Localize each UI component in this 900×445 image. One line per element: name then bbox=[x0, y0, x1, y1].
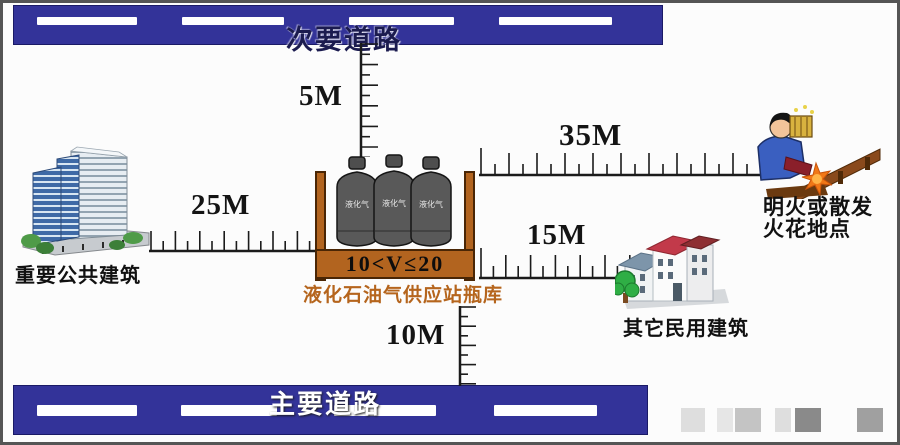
svg-text:液化气: 液化气 bbox=[419, 199, 443, 209]
distance-label-15m: 15M bbox=[527, 219, 586, 252]
station-caption: 液化石油气供应站瓶库 bbox=[293, 280, 513, 307]
distance-label-10m: 10M bbox=[386, 319, 445, 352]
civil-building-illustration bbox=[615, 227, 733, 315]
svg-text:液化气: 液化气 bbox=[345, 199, 369, 209]
right-block bbox=[681, 236, 719, 301]
spark-dot bbox=[810, 110, 814, 114]
flame-core bbox=[812, 174, 822, 184]
bush bbox=[123, 232, 143, 244]
distance-label-5m: 5M bbox=[299, 80, 343, 113]
secondary-road-label: 次要道路 bbox=[286, 18, 402, 57]
spark-dot bbox=[803, 105, 807, 109]
beam-leg bbox=[865, 157, 870, 170]
svg-text:液化气: 液化气 bbox=[382, 198, 406, 208]
distance-label-25m: 25M bbox=[191, 189, 250, 222]
ruler-5m bbox=[359, 43, 383, 157]
ruler-25m bbox=[149, 225, 321, 253]
spark-dot bbox=[794, 108, 798, 112]
road-dash bbox=[182, 17, 284, 25]
gas-cylinder: 液化气 bbox=[411, 157, 451, 246]
road-dash bbox=[37, 17, 137, 25]
ruler-10m bbox=[458, 306, 482, 386]
road-dash bbox=[181, 405, 277, 416]
civil-building-label: 其它民用建筑 bbox=[623, 312, 749, 341]
bush bbox=[109, 240, 125, 250]
flame-spot-label-line2: 火花地点 bbox=[763, 213, 851, 243]
gas-cylinder: 液化气 bbox=[337, 157, 377, 246]
lpg-safety-distance-diagram: 次要道路 主要道路 5M 25M 35M 15M 10M 10<V≤20 液化气… bbox=[0, 0, 900, 445]
road-dash bbox=[494, 405, 597, 416]
ruler-15m bbox=[479, 248, 633, 280]
road-dash bbox=[499, 17, 612, 25]
main-road-label: 主要道路 bbox=[269, 384, 381, 421]
gas-cylinders: 液化气 液化气 液化气 bbox=[336, 153, 452, 251]
bush bbox=[36, 242, 54, 254]
container-volume-label: 10<V≤20 bbox=[315, 249, 475, 279]
open-flame-illustration bbox=[738, 99, 888, 199]
distance-label-35m: 35M bbox=[559, 117, 622, 153]
beam-leg bbox=[838, 171, 843, 184]
public-building-label: 重要公共建筑 bbox=[15, 259, 141, 288]
road-dash bbox=[37, 405, 137, 416]
gas-cylinder: 液化气 bbox=[374, 155, 414, 246]
tower-front bbox=[33, 167, 61, 245]
public-building-illustration bbox=[21, 141, 151, 263]
